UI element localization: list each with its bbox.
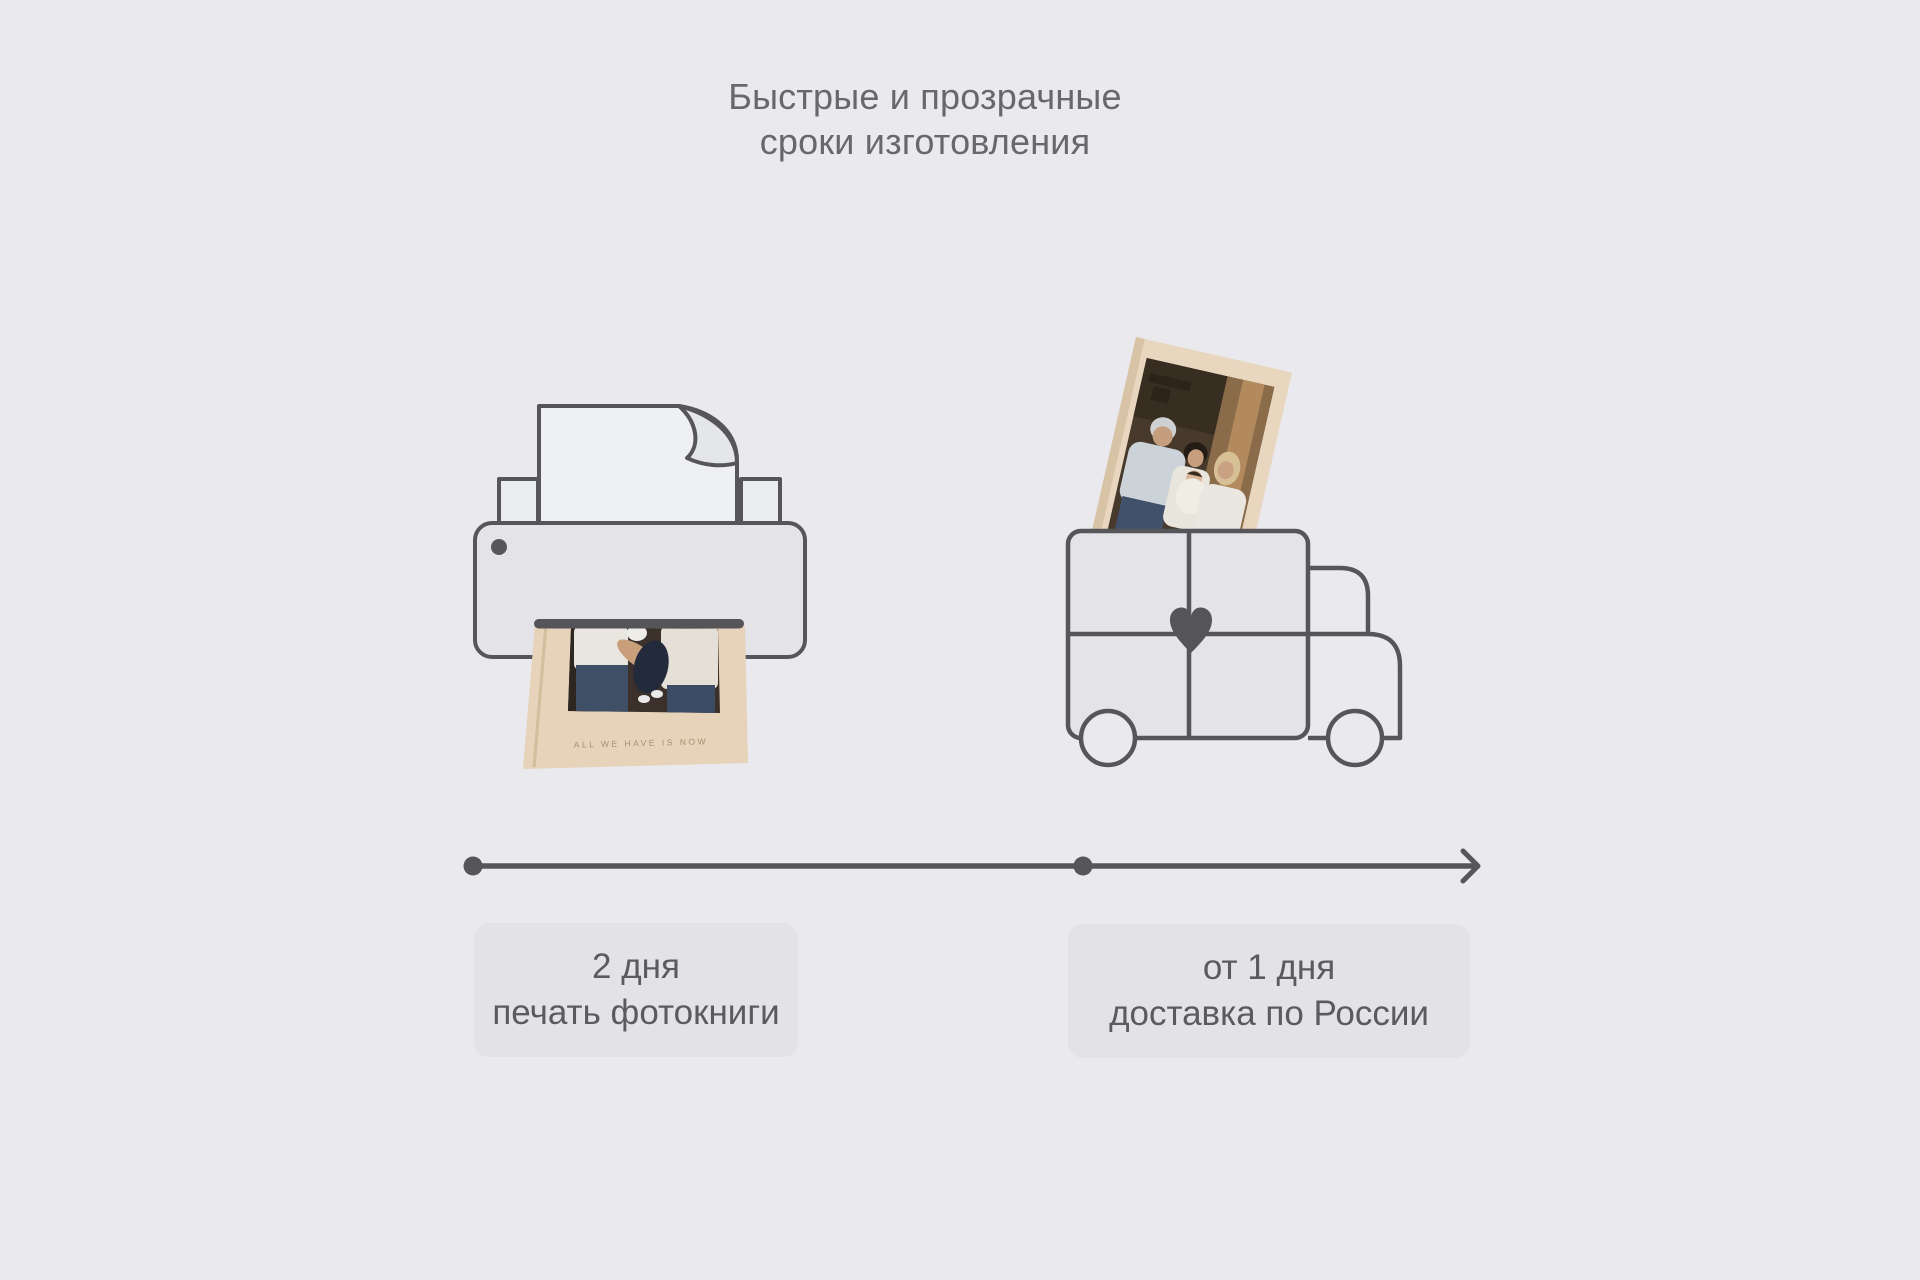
title-line-2: сроки изготовления — [728, 119, 1121, 164]
title-line-1: Быстрые и прозрачные — [728, 74, 1121, 119]
timeline-dot-start — [464, 857, 483, 876]
step-card-delivery: от 1 дня доставка по России — [1068, 924, 1470, 1058]
printer-illustration: ALL WE HAVE IS NOW — [455, 395, 825, 835]
production-times-infographic: Быстрые и прозрачные сроки изготовления — [0, 0, 1920, 1280]
step-label: доставка по России — [1109, 991, 1429, 1037]
wheel-rear — [1081, 711, 1135, 765]
truck-window — [1308, 568, 1368, 632]
step-duration: 2 дня — [592, 944, 680, 990]
timeline-dot-mid — [1074, 857, 1093, 876]
photobook-family-photo — [568, 625, 723, 715]
page-title: Быстрые и прозрачные сроки изготовления — [728, 74, 1121, 164]
power-indicator-dot — [491, 539, 507, 555]
step-label: печать фотокниги — [492, 990, 779, 1036]
delivery-truck-illustration — [1050, 280, 1420, 770]
step-duration: от 1 дня — [1203, 945, 1335, 991]
step-card-printing: 2 дня печать фотокниги — [474, 923, 798, 1057]
wheel-front — [1328, 711, 1382, 765]
paper-output-slot — [534, 619, 744, 629]
photobook: ALL WE HAVE IS NOW — [523, 624, 748, 769]
timeline-arrow — [440, 840, 1510, 895]
